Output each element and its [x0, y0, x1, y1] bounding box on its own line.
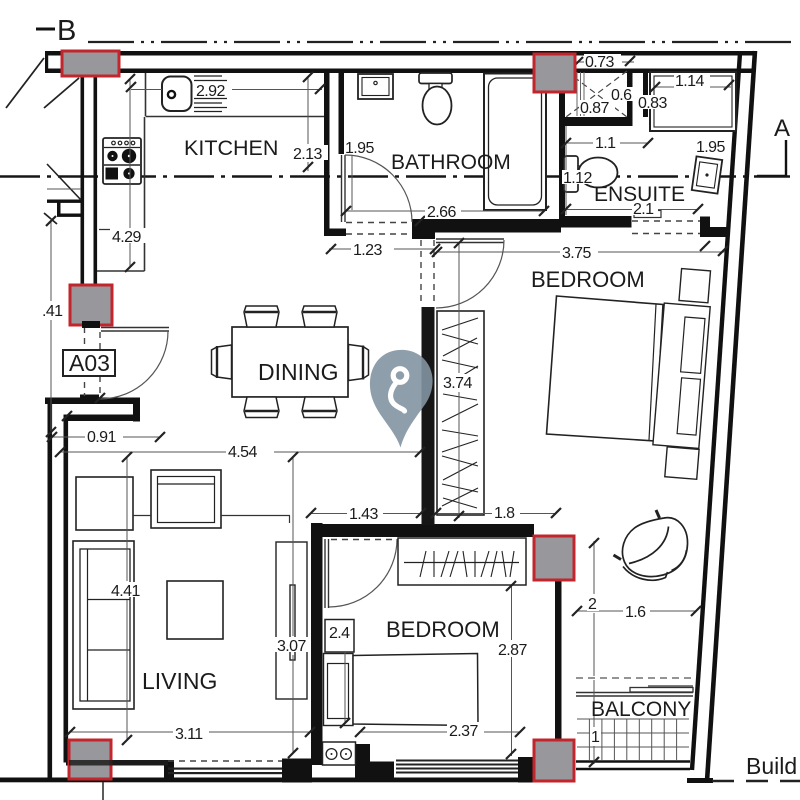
svg-text:1.8: 1.8 — [494, 505, 515, 522]
svg-text:2.13: 2.13 — [293, 146, 322, 163]
svg-text:0.83: 0.83 — [638, 95, 667, 112]
svg-text:KITCHEN: KITCHEN — [184, 136, 278, 160]
svg-text:A03: A03 — [69, 350, 110, 376]
svg-text:3.11: 3.11 — [175, 726, 203, 743]
svg-text:2.66: 2.66 — [427, 204, 456, 221]
svg-text:4.29: 4.29 — [112, 229, 141, 246]
svg-text:A: A — [774, 115, 790, 142]
svg-text:BEDROOM: BEDROOM — [531, 267, 645, 292]
svg-text:2: 2 — [588, 596, 597, 613]
svg-text:3.75: 3.75 — [562, 245, 591, 262]
svg-text:4.54: 4.54 — [228, 444, 257, 461]
svg-text:0.73: 0.73 — [585, 54, 614, 71]
svg-text:1.43: 1.43 — [349, 506, 378, 523]
svg-text:BEDROOM: BEDROOM — [386, 617, 500, 642]
svg-text:ENSUITE: ENSUITE — [594, 183, 685, 206]
svg-text:0.87: 0.87 — [580, 100, 609, 117]
svg-text:4.41: 4.41 — [111, 583, 140, 600]
svg-text:1.95: 1.95 — [345, 140, 374, 157]
svg-text:0.91: 0.91 — [87, 429, 116, 446]
svg-text:1.14: 1.14 — [675, 73, 704, 90]
svg-text:1.95: 1.95 — [696, 139, 725, 156]
svg-text:Build: Build — [746, 753, 797, 779]
svg-text:BALCONY: BALCONY — [591, 698, 691, 721]
svg-text:2.87: 2.87 — [498, 642, 527, 659]
svg-text:1.12: 1.12 — [563, 170, 592, 187]
svg-text:BATHROOM: BATHROOM — [391, 151, 511, 174]
svg-text:1.6: 1.6 — [625, 604, 646, 621]
svg-text:2.4: 2.4 — [329, 625, 350, 642]
svg-text:1.1: 1.1 — [595, 135, 616, 152]
svg-text:2.37: 2.37 — [449, 723, 478, 740]
svg-text:DINING: DINING — [258, 359, 339, 385]
svg-text:3.07: 3.07 — [277, 638, 306, 655]
svg-text:3.74: 3.74 — [443, 375, 472, 392]
svg-text:1: 1 — [591, 729, 600, 746]
svg-text:B: B — [57, 15, 76, 47]
svg-text:.41: .41 — [42, 303, 63, 320]
svg-text:1.23: 1.23 — [353, 242, 382, 259]
svg-text:LIVING: LIVING — [142, 668, 217, 694]
svg-text:2.92: 2.92 — [196, 83, 225, 100]
